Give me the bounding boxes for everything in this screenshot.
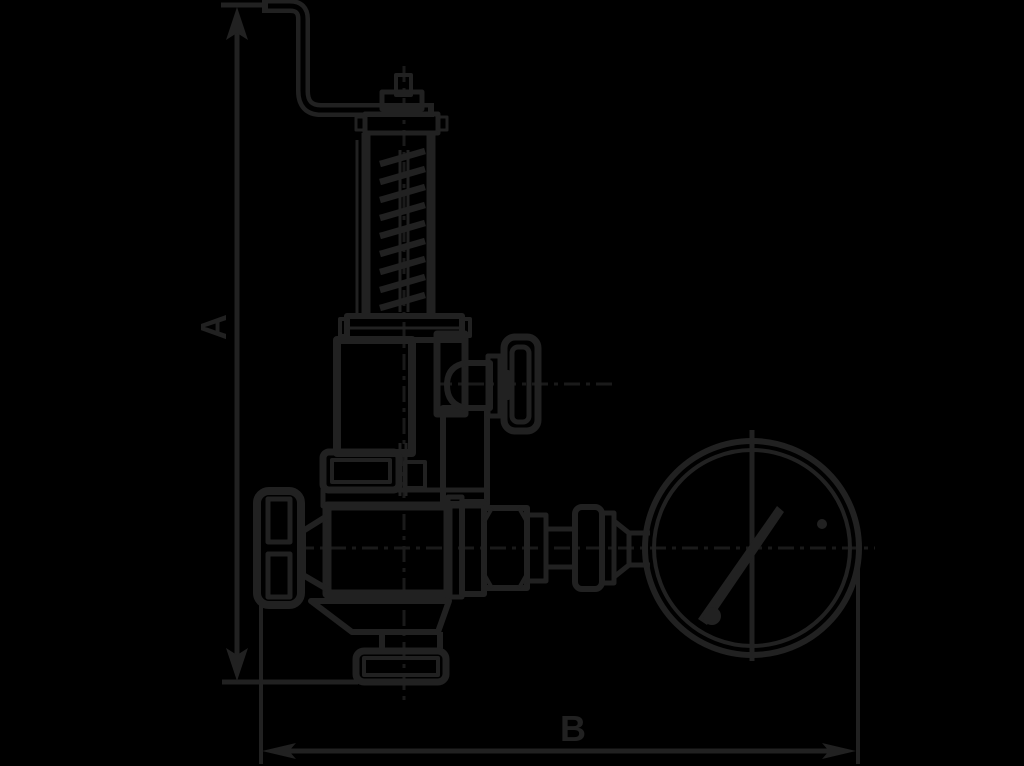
outlet-flange — [311, 601, 449, 682]
dim-b-label: B — [560, 708, 586, 749]
pressure-gauge — [645, 430, 859, 661]
gauge-branch-pipe — [437, 334, 487, 504]
spring-chamber — [323, 340, 425, 496]
drawing-canvas: A B — [0, 0, 1024, 766]
coil-spring — [380, 150, 425, 312]
gauge-dial-dot — [817, 519, 827, 529]
inlet-handwheel — [257, 491, 301, 605]
outlet-cone — [311, 601, 449, 632]
valve-technical-drawing: A B — [0, 0, 1024, 766]
chamber-lower-flange — [323, 452, 399, 490]
dim-a-label: A — [193, 314, 234, 340]
needle-counterweight — [703, 607, 721, 625]
